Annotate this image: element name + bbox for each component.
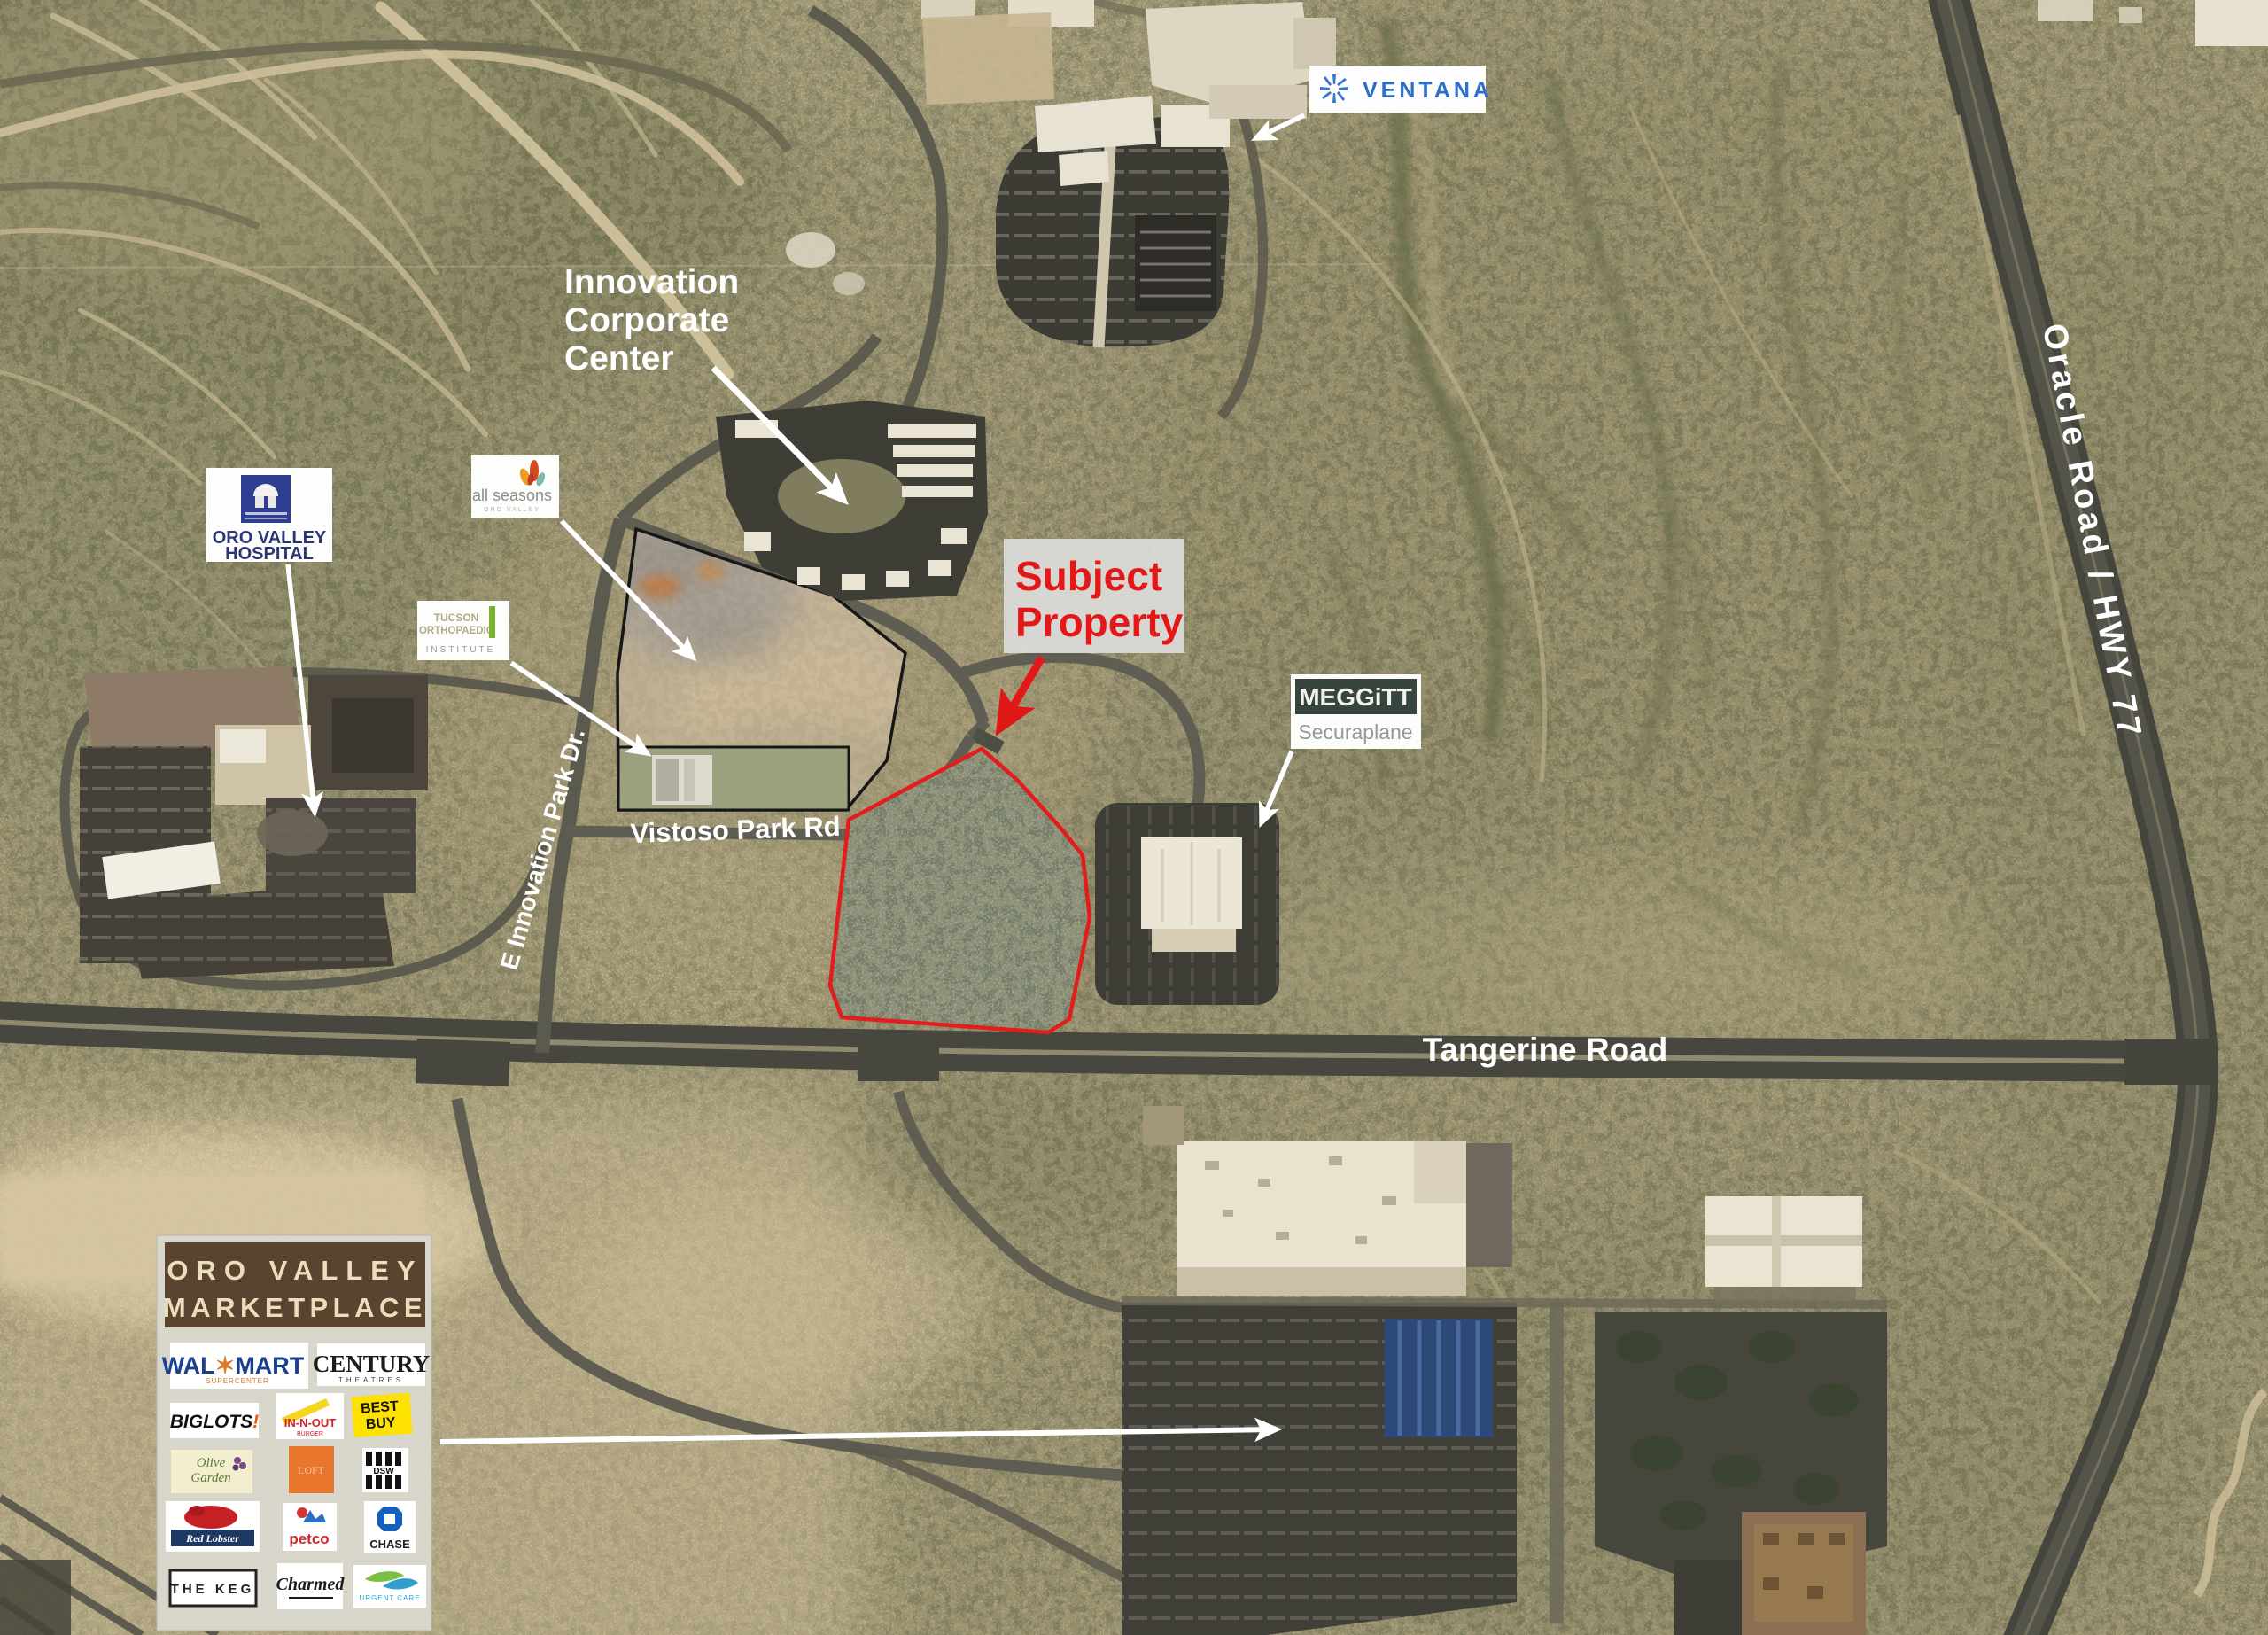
svg-text:ORO VALLEY: ORO VALLEY <box>167 1255 423 1286</box>
svg-text:BUY: BUY <box>365 1415 396 1432</box>
svg-text:BIGLOTS!: BIGLOTS! <box>170 1412 259 1432</box>
svg-text:BURGER: BURGER <box>297 1431 323 1437</box>
svg-text:BEST: BEST <box>361 1399 400 1417</box>
svg-text:URGENT CARE: URGENT CARE <box>359 1594 420 1602</box>
svg-text:Corporate: Corporate <box>564 301 729 339</box>
svg-text:ORO VALLEY: ORO VALLEY <box>484 507 540 513</box>
svg-text:Tangerine Road: Tangerine Road <box>1423 1032 1668 1068</box>
svg-text:VENTANA: VENTANA <box>1363 78 1493 103</box>
svg-text:IN-N-OUT: IN-N-OUT <box>284 1416 337 1429</box>
svg-text:MEGGiTT: MEGGiTT <box>1299 683 1412 711</box>
svg-text:CENTURY: CENTURY <box>313 1351 431 1377</box>
svg-text:HOSPITAL: HOSPITAL <box>225 544 314 564</box>
svg-text:THE KEG: THE KEG <box>171 1582 255 1597</box>
svg-text:DSW: DSW <box>373 1467 394 1476</box>
svg-text:LOFT: LOFT <box>298 1464 325 1476</box>
svg-text:Innovation: Innovation <box>564 263 739 301</box>
svg-text:Charmed: Charmed <box>276 1575 346 1594</box>
svg-text:Subject: Subject <box>1015 553 1162 599</box>
svg-text:INSTITUTE: INSTITUTE <box>426 645 496 655</box>
svg-text:Garden: Garden <box>190 1471 230 1485</box>
svg-text:SUPERCENTER: SUPERCENTER <box>206 1377 268 1385</box>
svg-text:Center: Center <box>564 339 674 378</box>
svg-text:MARKETPLACE: MARKETPLACE <box>163 1292 427 1323</box>
svg-text:TUCSON: TUCSON <box>434 611 479 624</box>
svg-text:Red Lobster: Red Lobster <box>185 1532 239 1545</box>
svg-text:Securaplane: Securaplane <box>1298 720 1412 744</box>
svg-text:Property: Property <box>1015 599 1184 645</box>
svg-text:petco: petco <box>289 1530 329 1547</box>
svg-text:all seasons: all seasons <box>472 487 552 504</box>
svg-text:ORTHOPAEDIC: ORTHOPAEDIC <box>419 626 493 636</box>
svg-text:Olive: Olive <box>197 1456 226 1470</box>
svg-text:CHASE: CHASE <box>369 1538 410 1551</box>
svg-text:THEATRES: THEATRES <box>338 1376 404 1384</box>
svg-text:WAL✶MART: WAL✶MART <box>162 1352 305 1379</box>
